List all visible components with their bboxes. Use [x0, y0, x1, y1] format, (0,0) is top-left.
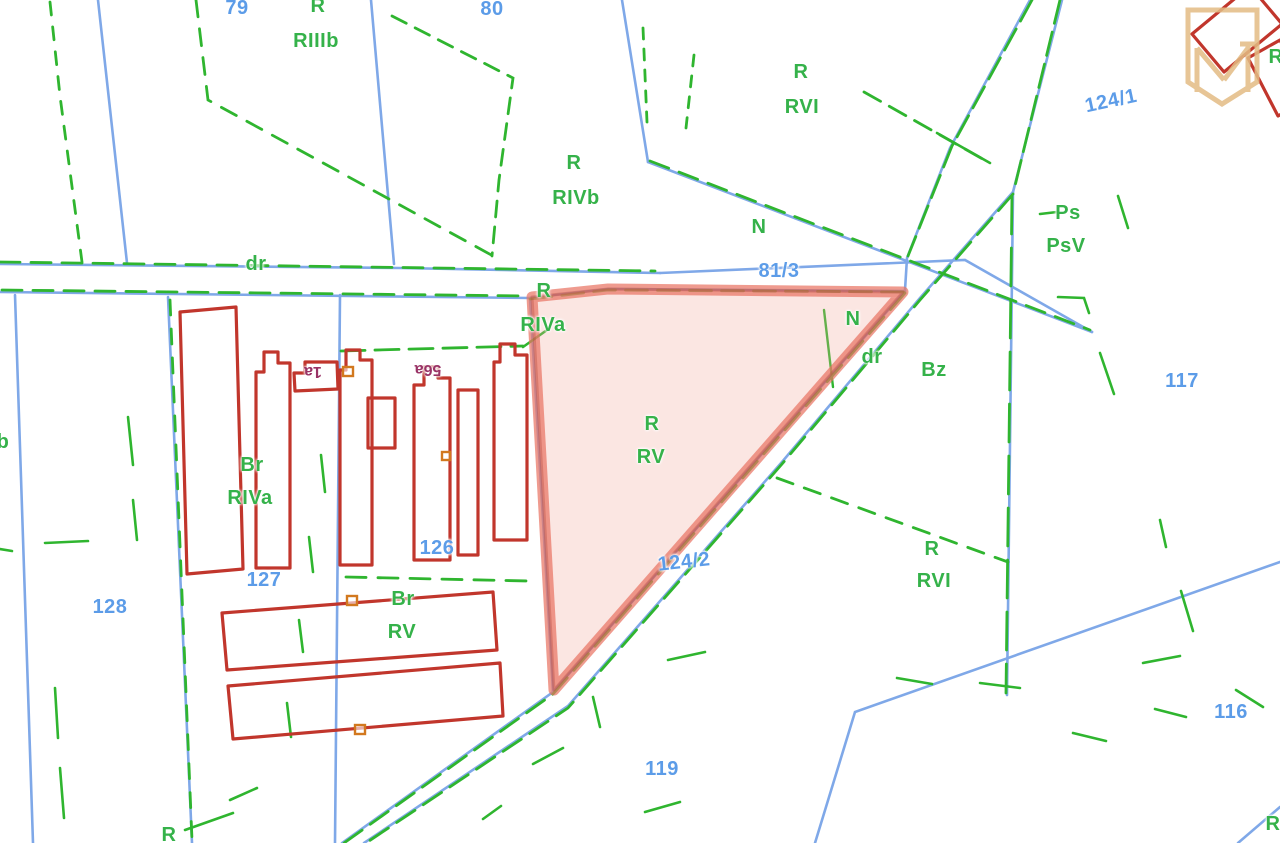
map-canvas[interactable]: 798081/3124/1117126127128124/2119116RRII… [0, 0, 1280, 843]
highlighted-parcel [532, 289, 903, 690]
map-drawing [0, 0, 1280, 843]
logo-watermark-icon [1188, 10, 1257, 104]
